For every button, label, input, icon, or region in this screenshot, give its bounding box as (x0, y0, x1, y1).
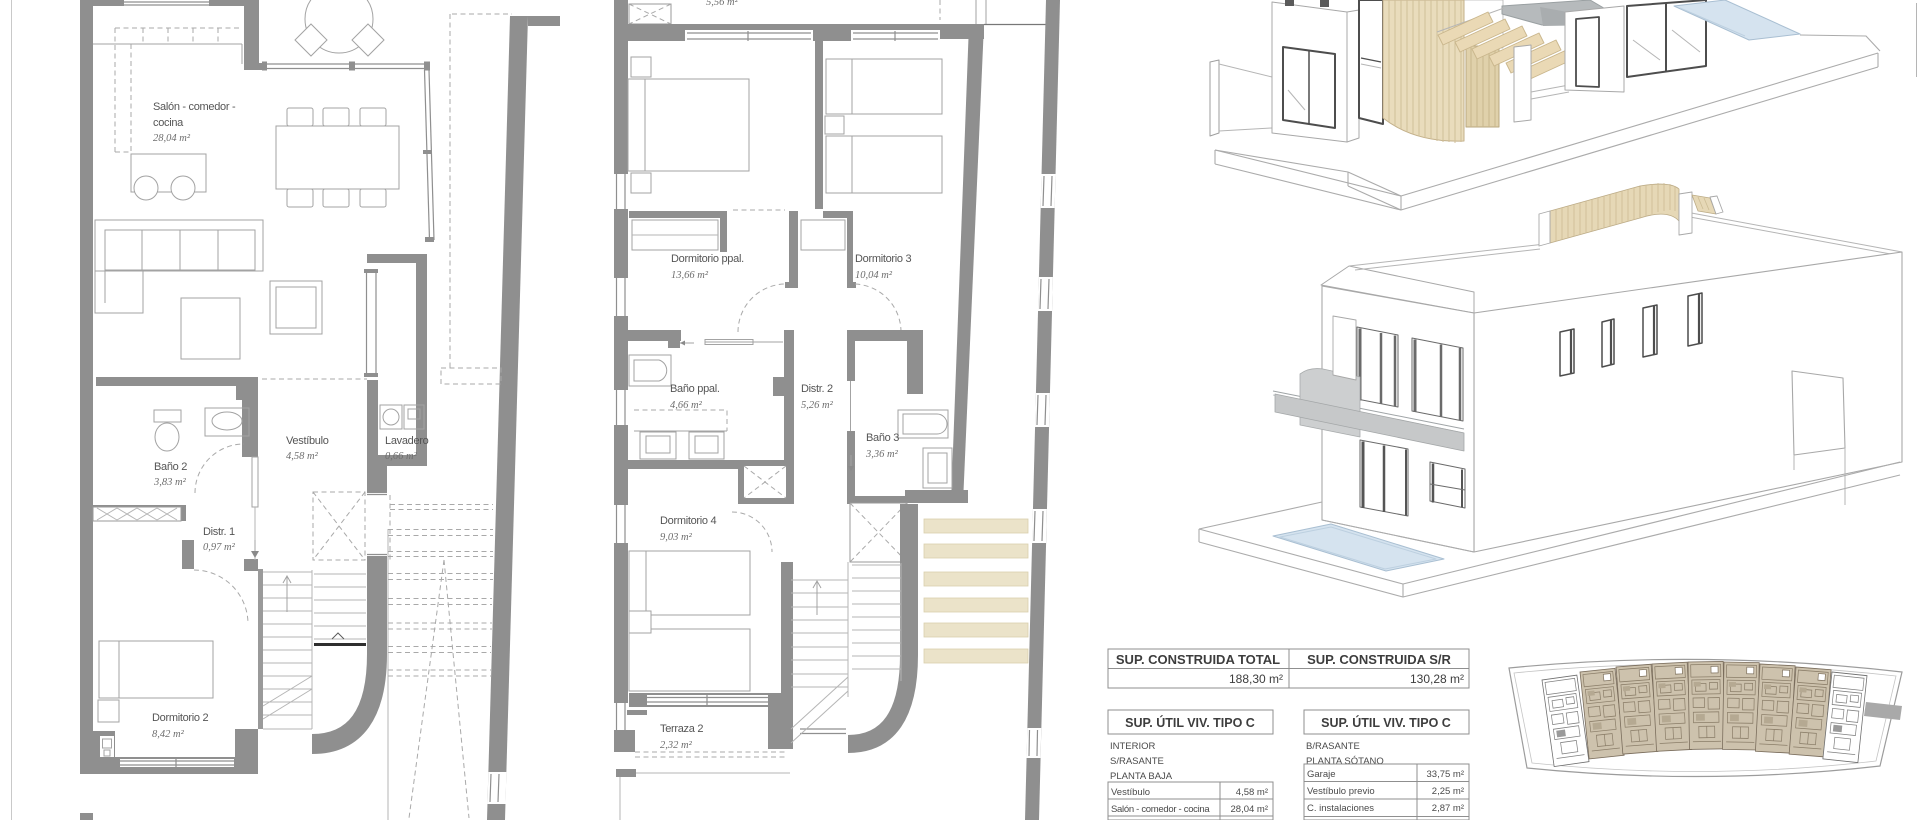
svg-text:8,42 m²: 8,42 m² (152, 729, 185, 740)
svg-text:3,83 m²: 3,83 m² (153, 477, 187, 488)
svg-text:0,66 m²: 0,66 m² (385, 451, 418, 462)
svg-text:Dormitorio 2: Dormitorio 2 (152, 712, 208, 724)
svg-text:cocina: cocina (153, 117, 184, 129)
svg-text:Lavadero: Lavadero (385, 435, 429, 447)
svg-text:Salón - comedor - cocina: Salón - comedor - cocina (1111, 804, 1210, 815)
svg-text:2,87 m²: 2,87 m² (1432, 803, 1464, 814)
svg-text:0,97 m²: 0,97 m² (203, 542, 236, 553)
svg-text:Baño 3: Baño 3 (866, 432, 899, 444)
svg-text:PLANTA SÓTANO: PLANTA SÓTANO (1306, 756, 1384, 767)
svg-text:188,30 m²: 188,30 m² (1229, 672, 1283, 686)
svg-text:Vestíbulo: Vestíbulo (286, 435, 329, 447)
svg-text:Baño ppal.: Baño ppal. (670, 383, 720, 395)
svg-text:Salón - comedor -: Salón - comedor - (153, 101, 236, 113)
svg-text:Dormitorio 3: Dormitorio 3 (855, 253, 911, 265)
svg-text:Dormitorio ppal.: Dormitorio ppal. (671, 253, 744, 265)
svg-text:5,56 m²: 5,56 m² (706, 0, 739, 8)
svg-text:Terraza 2: Terraza 2 (660, 723, 703, 735)
svg-text:SUP. ÚTIL VIV. TIPO C: SUP. ÚTIL VIV. TIPO C (1321, 715, 1451, 730)
svg-text:4,58 m²: 4,58 m² (1236, 787, 1268, 798)
svg-text:SUP. CONSTRUIDA TOTAL: SUP. CONSTRUIDA TOTAL (1116, 652, 1280, 667)
svg-text:4,58 m²: 4,58 m² (286, 451, 319, 462)
svg-text:2,25 m²: 2,25 m² (1432, 786, 1464, 797)
svg-text:10,04 m²: 10,04 m² (855, 270, 893, 281)
svg-text:SUP. ÚTIL VIV. TIPO C: SUP. ÚTIL VIV. TIPO C (1125, 715, 1255, 730)
svg-text:Dormitorio 4: Dormitorio 4 (660, 515, 716, 527)
svg-text:Distr. 1: Distr. 1 (203, 526, 235, 538)
svg-text:Vestíbulo previo: Vestíbulo previo (1307, 786, 1375, 797)
svg-text:Distr. 2: Distr. 2 (801, 383, 833, 395)
svg-text:S/RASANTE: S/RASANTE (1110, 756, 1164, 767)
svg-text:B/RASANTE: B/RASANTE (1306, 741, 1360, 752)
svg-text:130,28 m²: 130,28 m² (1410, 672, 1464, 686)
svg-text:2,32 m²: 2,32 m² (660, 740, 693, 751)
svg-text:Vestíbulo: Vestíbulo (1111, 787, 1150, 798)
svg-text:3,36 m²: 3,36 m² (865, 449, 899, 460)
svg-text:INTERIOR: INTERIOR (1110, 741, 1156, 752)
svg-text:9,03 m²: 9,03 m² (660, 532, 693, 543)
svg-text:5,26 m²: 5,26 m² (801, 400, 834, 411)
svg-text:C. instalaciones: C. instalaciones (1307, 803, 1374, 814)
svg-text:Garaje: Garaje (1307, 769, 1336, 780)
svg-text:SUP. CONSTRUIDA S/R: SUP. CONSTRUIDA S/R (1307, 652, 1451, 667)
svg-text:4,66 m²: 4,66 m² (670, 400, 703, 411)
svg-text:PLANTA BAJA: PLANTA BAJA (1110, 771, 1173, 782)
svg-text:28,04 m²: 28,04 m² (1231, 804, 1269, 815)
svg-text:13,66 m²: 13,66 m² (671, 270, 709, 281)
svg-text:Baño 2: Baño 2 (154, 461, 187, 473)
svg-text:33,75 m²: 33,75 m² (1427, 769, 1465, 780)
svg-text:28,04 m²: 28,04 m² (153, 133, 191, 144)
